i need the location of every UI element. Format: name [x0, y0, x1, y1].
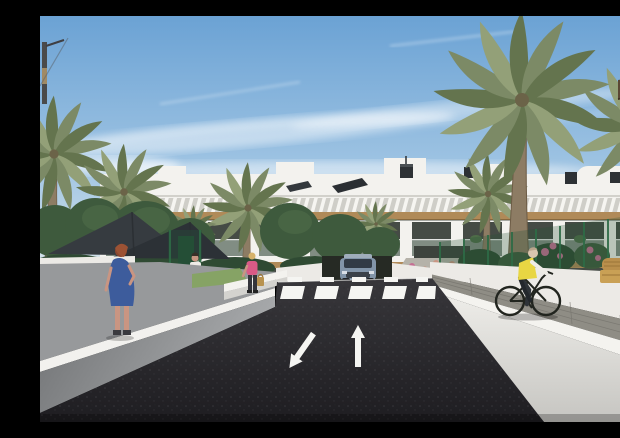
- wicker-chair: [600, 258, 620, 283]
- windshield: [344, 259, 372, 268]
- handbag: [257, 277, 264, 286]
- pergola-slats: [100, 198, 620, 212]
- architectural-rendering: New-build apartment complex — street ren…: [40, 16, 620, 422]
